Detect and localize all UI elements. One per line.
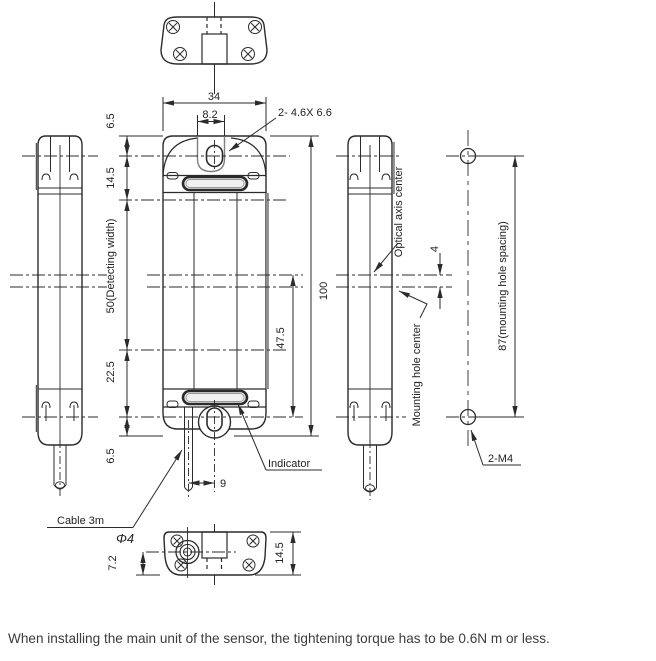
dim-depth: 14.5: [274, 542, 286, 563]
engineering-drawing-page: 34 8.2 2- 4.6X 6.6 6.5 14.5 50(Detecting…: [0, 0, 656, 661]
dim-axis-offset: 4: [429, 246, 441, 252]
cable-leader: [133, 450, 182, 528]
optical-axis-label: Optical axis center: [393, 166, 405, 257]
dim-cable-center-depth: 7.2: [107, 555, 119, 570]
dim-22-5: 22.5: [105, 361, 117, 382]
indicator-window-top: [183, 177, 247, 190]
hole-note-label: 2- 4.6X 6.6: [278, 107, 332, 119]
dim-axis-to-hole: 47.5: [275, 327, 287, 348]
right-side-view: [348, 136, 394, 500]
m4-label: 2-M4: [488, 453, 513, 465]
dim-hole-spacing: 87(mounting hole spacing): [497, 221, 509, 351]
left-side-view: [36, 136, 82, 497]
cable-diameter-label: Φ4: [116, 531, 134, 546]
drawing-labels: 34 8.2 2- 4.6X 6.6 6.5 14.5 50(Detecting…: [57, 91, 513, 571]
sensor-dimension-drawing: 34 8.2 2- 4.6X 6.6 6.5 14.5 50(Detecting…: [0, 0, 656, 628]
dim-height: 100: [318, 282, 330, 300]
top-view: [161, 2, 267, 94]
mounting-hole-pattern: [446, 130, 524, 465]
dim-detecting-width: 50(Detecting width): [105, 219, 117, 314]
dim-cable-offset: 9: [220, 478, 226, 490]
front-view: [163, 136, 267, 499]
indicator-window-bottom: [183, 391, 247, 404]
left-dimension-chain: [119, 136, 163, 436]
dim-6-5-bottom: 6.5: [105, 448, 117, 463]
dim-width: 34: [208, 91, 220, 103]
m4-leader: [471, 430, 483, 465]
mounting-hole-label: Mounting hole center: [411, 323, 423, 426]
mounting-hole-leader: [399, 291, 427, 318]
dim-14-5: 14.5: [105, 167, 117, 188]
cable-label: Cable 3m: [57, 515, 104, 527]
dim-slot-width: 8.2: [202, 109, 217, 121]
installation-note: When installing the main unit of the sen…: [8, 631, 656, 646]
indicator-label: Indicator: [268, 458, 311, 470]
dim-6-5-top: 6.5: [105, 113, 117, 128]
